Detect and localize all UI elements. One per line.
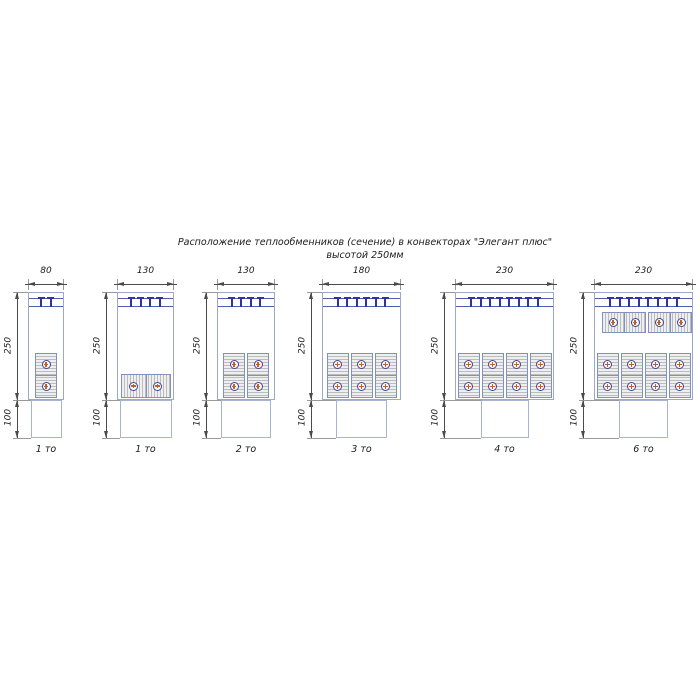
arrow-left-icon <box>217 282 224 286</box>
arrow-left-icon <box>117 282 124 286</box>
exchanger-divider <box>598 375 618 376</box>
exchanger-divider <box>36 375 56 376</box>
grille-bracket-icon <box>489 299 491 307</box>
plinth-height-dimension-label: 100 <box>4 398 15 438</box>
tube-circle <box>536 360 545 369</box>
plinth-height-dimension-label: 100 <box>431 398 442 438</box>
exchanger-divider <box>352 375 372 376</box>
dimension-extension-line <box>440 438 481 439</box>
exchanger-divider <box>146 375 147 397</box>
arrow-right-icon <box>167 282 174 286</box>
tube-circle <box>631 318 640 327</box>
height-dimension-line <box>17 292 18 438</box>
arrow-up-icon <box>581 400 585 407</box>
exchanger-divider <box>459 375 479 376</box>
grille-bracket-icon <box>149 299 151 307</box>
width-dimension-label: 230 <box>430 266 579 277</box>
tube-circle <box>627 382 636 391</box>
grille-bracket-icon <box>130 299 132 307</box>
dimension-extension-line <box>579 438 619 439</box>
tube-circle <box>333 360 342 369</box>
dimension-extension-line <box>579 400 619 401</box>
exchanger-divider <box>624 313 625 332</box>
grille-bracket-icon <box>480 299 482 307</box>
grille-bracket-icon <box>619 299 621 307</box>
grille-bracket-icon <box>140 299 142 307</box>
tube-circle <box>488 382 497 391</box>
exchanger-divider <box>670 375 690 376</box>
grille-slot-line <box>118 306 173 307</box>
exchanger-divider <box>531 375 551 376</box>
plinth-box <box>120 400 172 438</box>
dimension-extension-line <box>202 438 221 439</box>
body-height-dimension-label: 250 <box>4 326 15 366</box>
arrow-right-icon <box>57 282 64 286</box>
grille-bracket-icon <box>470 299 472 307</box>
width-dimension-label: 180 <box>297 266 426 277</box>
height-dimension-line <box>311 292 312 438</box>
arrow-down-icon <box>104 431 108 438</box>
arrow-down-icon <box>442 393 446 400</box>
exchanger-divider <box>224 375 244 376</box>
tube-circle <box>254 360 263 369</box>
arrow-up-icon <box>581 292 585 299</box>
width-dimension-label: 80 <box>3 266 89 277</box>
grille-bracket-icon <box>159 299 161 307</box>
tube-circle <box>677 318 686 327</box>
height-dimension-line <box>444 292 445 438</box>
body-height-dimension-label: 250 <box>431 326 442 366</box>
arrow-up-icon <box>204 292 208 299</box>
tube-circle <box>230 382 239 391</box>
arrow-down-icon <box>581 393 585 400</box>
grille-bracket-icon <box>365 299 367 307</box>
tube-circle <box>42 360 51 369</box>
height-dimension-line <box>206 292 207 438</box>
grille-bracket-icon <box>628 299 630 307</box>
grille-bracket-icon <box>666 299 668 307</box>
arrow-left-icon <box>322 282 329 286</box>
tube-circle <box>655 318 664 327</box>
diagram-caption: 3 то <box>297 444 426 456</box>
tube-circle <box>651 360 660 369</box>
exchanger-divider <box>670 313 671 332</box>
width-dimension-line <box>452 284 557 285</box>
grille-bracket-icon <box>40 299 42 307</box>
grille-bracket-icon <box>240 299 242 307</box>
plinth-box <box>619 400 668 438</box>
tube-circle <box>333 382 342 391</box>
grille-bracket-icon <box>337 299 339 307</box>
tube-circle <box>512 382 521 391</box>
body-height-dimension-label: 250 <box>570 326 581 366</box>
arrow-left-icon <box>594 282 601 286</box>
diagram-caption: 6 то <box>569 444 700 456</box>
dimension-extension-line <box>102 438 120 439</box>
tube-circle <box>536 382 545 391</box>
grille-bracket-icon <box>508 299 510 307</box>
tube-circle <box>42 382 51 391</box>
plinth-height-dimension-label: 100 <box>570 398 581 438</box>
grille-bracket-icon <box>647 299 649 307</box>
exchanger-divider <box>328 375 348 376</box>
grille-bracket-icon <box>384 299 386 307</box>
tube-circle <box>464 360 473 369</box>
dimension-extension-line <box>13 438 31 439</box>
grille-slot-line <box>29 298 63 299</box>
grille-bracket-icon <box>250 299 252 307</box>
tube-circle <box>627 360 636 369</box>
tube-circle <box>464 382 473 391</box>
tube-circle <box>609 318 618 327</box>
exchanger-divider <box>507 375 527 376</box>
tube-circle <box>129 382 138 391</box>
arrow-down-icon <box>204 393 208 400</box>
grille-bracket-icon <box>375 299 377 307</box>
width-dimension-line <box>319 284 404 285</box>
tube-circle <box>603 360 612 369</box>
arrow-right-icon <box>686 282 693 286</box>
arrow-left-icon <box>28 282 35 286</box>
technical-drawing-canvas: Расположение теплообменников (сечение) в… <box>0 0 700 700</box>
arrow-up-icon <box>15 292 19 299</box>
grille-bracket-icon <box>231 299 233 307</box>
arrow-down-icon <box>442 431 446 438</box>
exchanger-divider <box>248 375 268 376</box>
grille-bracket-icon <box>657 299 659 307</box>
arrow-down-icon <box>15 431 19 438</box>
arrow-up-icon <box>104 400 108 407</box>
width-dimension-line <box>591 284 696 285</box>
tube-circle <box>603 382 612 391</box>
exchanger-divider <box>622 375 642 376</box>
arrow-right-icon <box>268 282 275 286</box>
diagram-caption: 2 то <box>192 444 300 456</box>
tube-circle <box>254 382 263 391</box>
grille-bracket-icon <box>346 299 348 307</box>
arrow-down-icon <box>204 431 208 438</box>
grille-bracket-icon <box>537 299 539 307</box>
arrow-down-icon <box>104 393 108 400</box>
grille-bracket-icon <box>527 299 529 307</box>
arrow-left-icon <box>455 282 462 286</box>
width-dimension-label: 130 <box>192 266 300 277</box>
arrow-down-icon <box>15 393 19 400</box>
diagram-caption: 4 то <box>430 444 579 456</box>
grille-slot-line <box>218 306 274 307</box>
arrow-up-icon <box>442 292 446 299</box>
width-dimension-label: 130 <box>92 266 199 277</box>
exchanger-divider <box>646 375 666 376</box>
arrow-up-icon <box>104 292 108 299</box>
arrow-right-icon <box>547 282 554 286</box>
body-height-dimension-label: 250 <box>298 326 309 366</box>
dimension-extension-line <box>440 400 481 401</box>
plinth-box <box>31 400 62 438</box>
exchanger-divider <box>376 375 396 376</box>
arrow-up-icon <box>204 400 208 407</box>
height-dimension-line <box>106 292 107 438</box>
tube-circle <box>381 382 390 391</box>
tube-circle <box>651 382 660 391</box>
plinth-box <box>481 400 529 438</box>
width-dimension-label: 230 <box>569 266 700 277</box>
grille-slot-line <box>323 306 400 307</box>
tube-circle <box>153 382 162 391</box>
grille-bracket-icon <box>499 299 501 307</box>
tube-circle <box>675 382 684 391</box>
arrow-up-icon <box>309 292 313 299</box>
arrow-up-icon <box>15 400 19 407</box>
arrow-right-icon <box>394 282 401 286</box>
arrow-up-icon <box>442 400 446 407</box>
plinth-box <box>221 400 271 438</box>
grille-bracket-icon <box>356 299 358 307</box>
dimension-extension-line <box>307 438 336 439</box>
tube-circle <box>230 360 239 369</box>
grille-bracket-icon <box>518 299 520 307</box>
arrow-down-icon <box>581 431 585 438</box>
tube-circle <box>357 360 366 369</box>
diagrams-row: 802501001 то1302501001 то1302501002 то18… <box>0 0 700 700</box>
plinth-box <box>336 400 387 438</box>
grille-bracket-icon <box>676 299 678 307</box>
tube-circle <box>381 360 390 369</box>
grille-bracket-icon <box>259 299 261 307</box>
grille-slot-line <box>218 298 274 299</box>
grille-slot-line <box>118 298 173 299</box>
arrow-down-icon <box>309 393 313 400</box>
body-height-dimension-label: 250 <box>93 326 104 366</box>
arrow-down-icon <box>309 431 313 438</box>
grille-bracket-icon <box>609 299 611 307</box>
body-height-dimension-label: 250 <box>193 326 204 366</box>
plinth-height-dimension-label: 100 <box>93 398 104 438</box>
grille-slot-line <box>29 306 63 307</box>
exchanger-divider <box>483 375 503 376</box>
grille-bracket-icon <box>638 299 640 307</box>
plinth-height-dimension-label: 100 <box>298 398 309 438</box>
diagram-caption: 1 то <box>92 444 199 456</box>
tube-circle <box>512 360 521 369</box>
arrow-up-icon <box>309 400 313 407</box>
grille-bracket-icon <box>50 299 52 307</box>
diagram-caption: 1 то <box>3 444 89 456</box>
tube-circle <box>488 360 497 369</box>
plinth-height-dimension-label: 100 <box>193 398 204 438</box>
tube-circle <box>357 382 366 391</box>
height-dimension-line <box>583 292 584 438</box>
tube-circle <box>675 360 684 369</box>
